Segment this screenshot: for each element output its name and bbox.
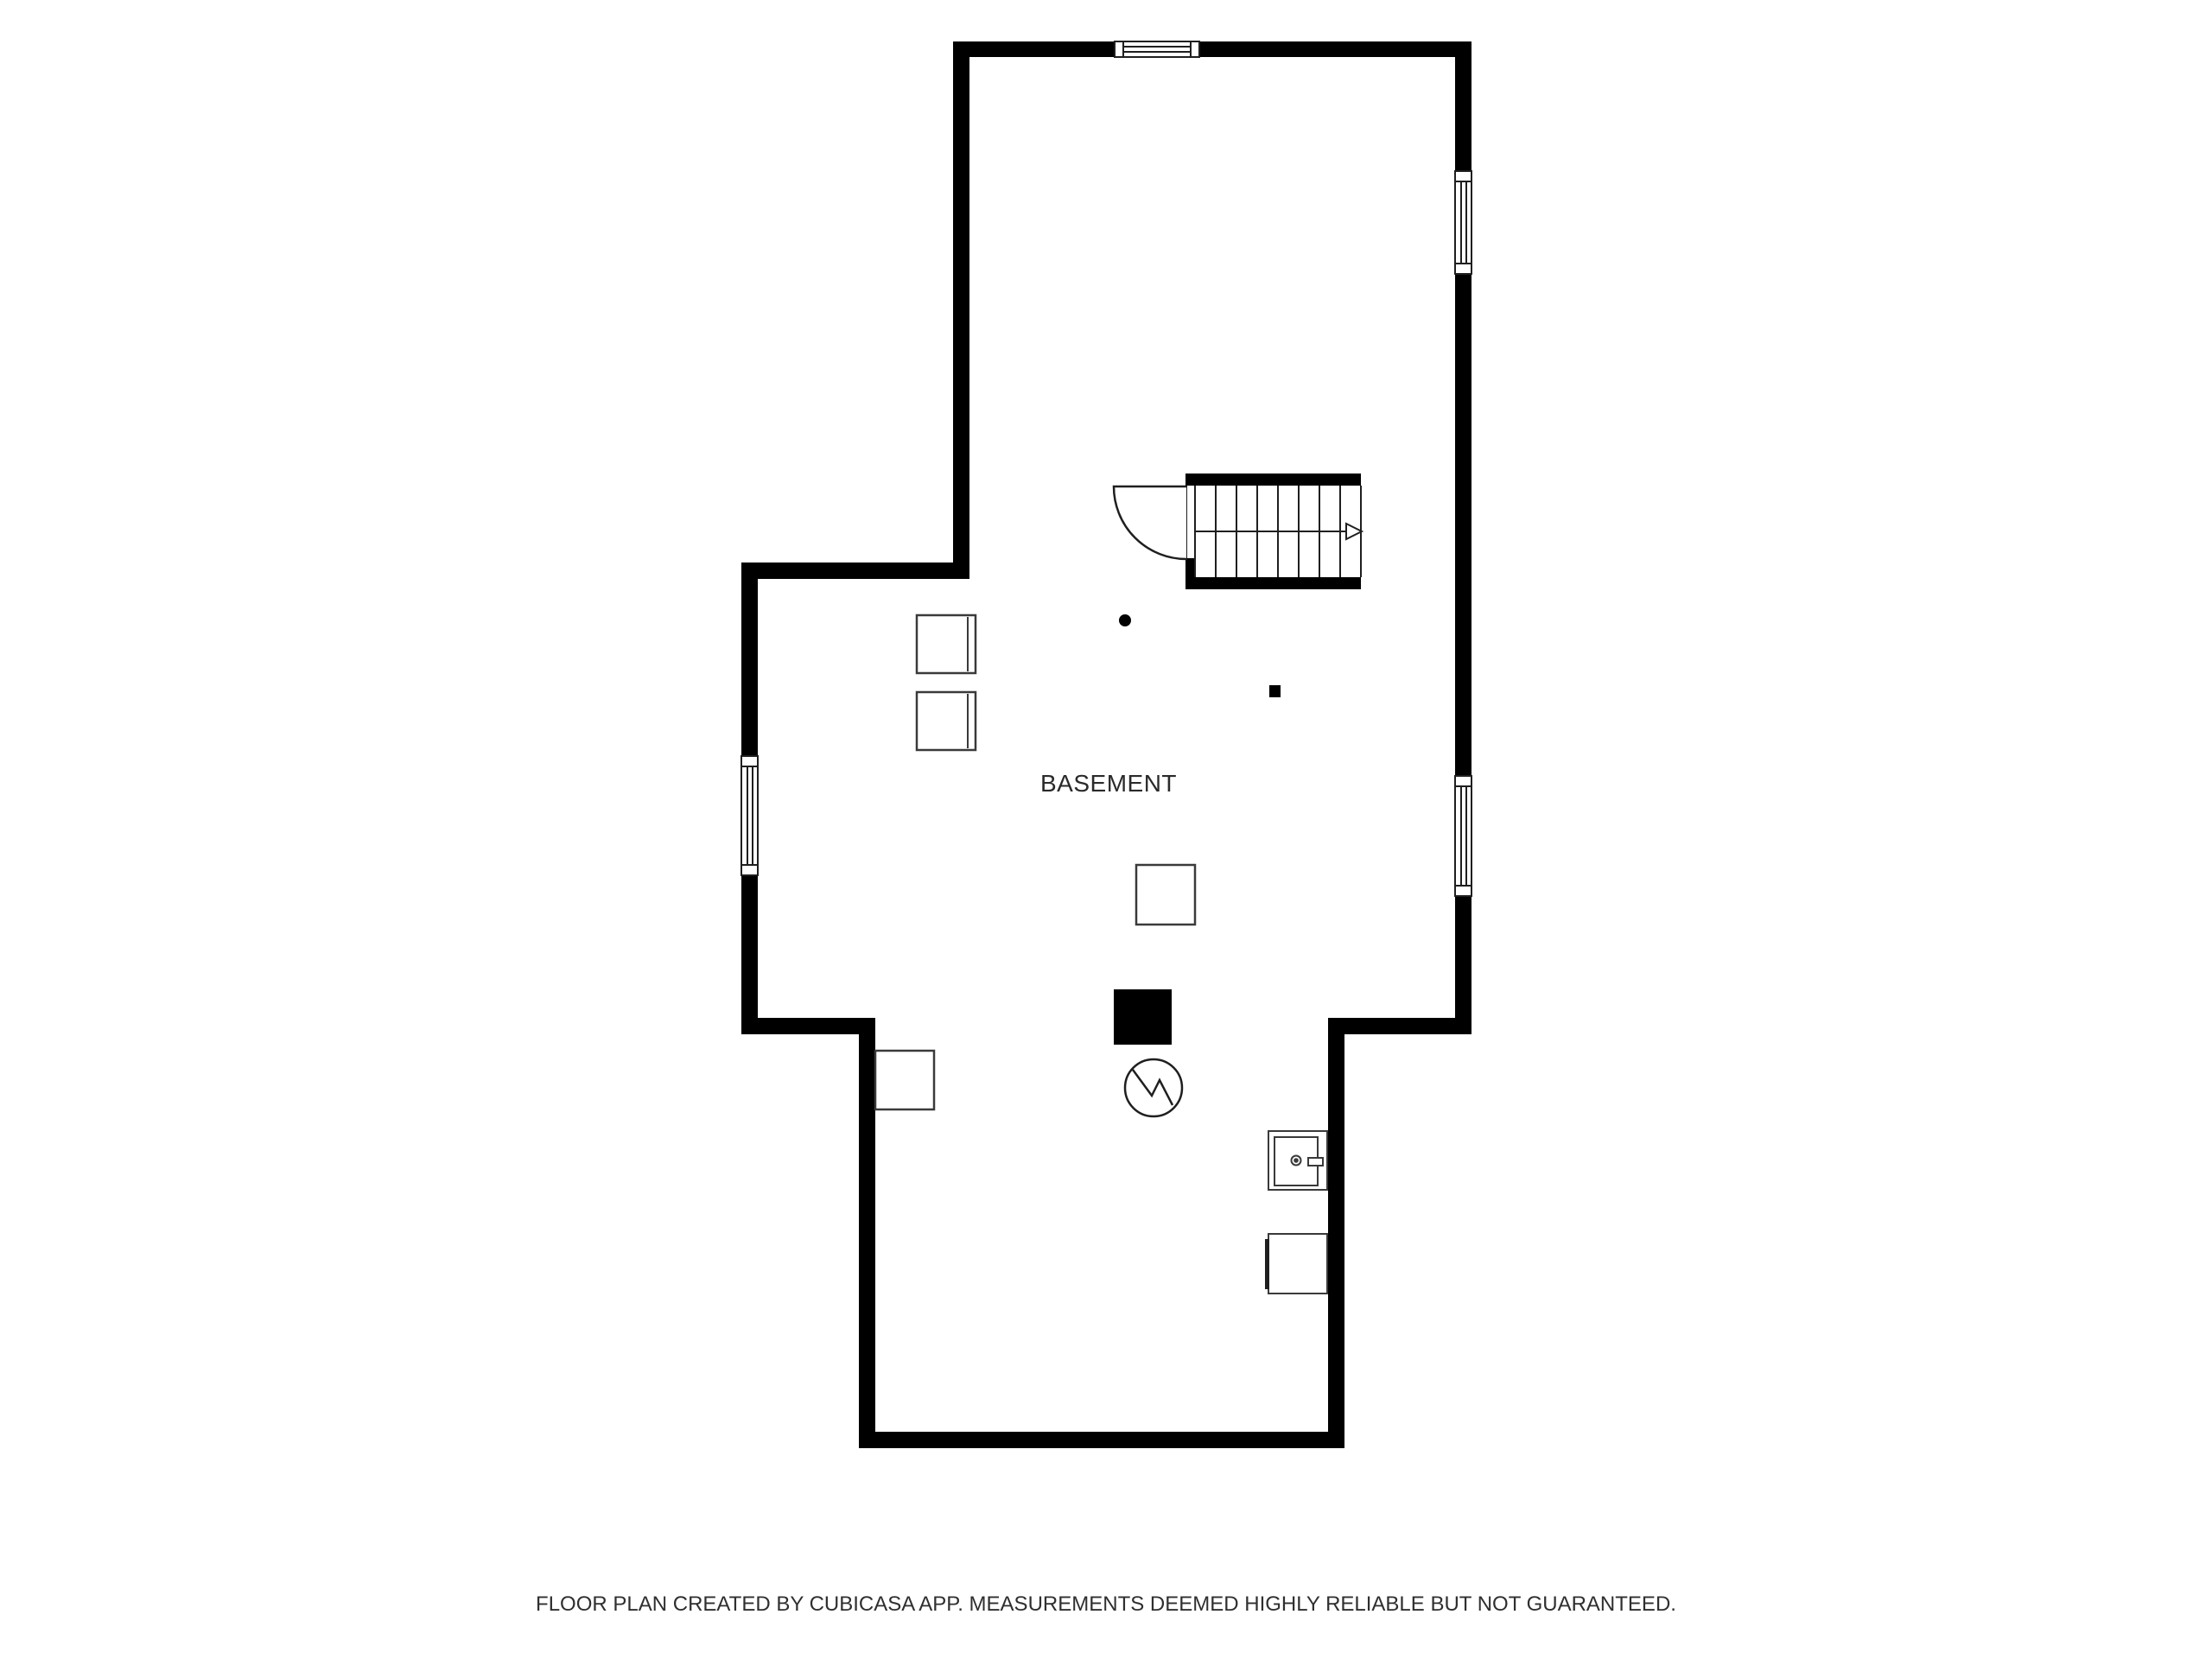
wall-step-bottom-left (741, 1018, 874, 1034)
appliance-box-3 (1265, 1234, 1327, 1294)
wall-bottom (859, 1432, 1344, 1448)
floor-plan-canvas: BASEMENT FLOOR PLAN CREATED BY CUBICASA … (0, 0, 2212, 1659)
door-swing-arc (1114, 486, 1186, 559)
corner-box (875, 1051, 934, 1109)
window-top (1115, 41, 1199, 57)
wall-dot-marker (1119, 614, 1131, 626)
wall-lower-left (859, 1018, 875, 1448)
stair-wall-bottom (1185, 577, 1361, 589)
window-left (741, 756, 758, 875)
windows (741, 41, 1471, 896)
appliance-box-2 (917, 692, 976, 750)
utility-sink (1268, 1131, 1327, 1190)
equipment-box-black (1114, 989, 1172, 1045)
appliance-door-edge (1265, 1239, 1269, 1289)
wall-step-bottom-right (1328, 1018, 1471, 1034)
storage-box (1136, 865, 1195, 925)
floor-plan-drawing (0, 0, 2212, 1659)
small-wall-box (1269, 685, 1281, 697)
sink-faucet (1308, 1158, 1323, 1166)
fixtures (875, 614, 1327, 1294)
appliance-box-1 (917, 615, 976, 673)
wall-upper-left (953, 41, 969, 579)
footer-disclaimer: FLOOR PLAN CREATED BY CUBICASA APP. MEAS… (0, 1592, 2212, 1617)
staircase (1185, 474, 1362, 589)
pump-circle-symbol (1125, 1059, 1182, 1116)
wall-mid-horizontal (741, 563, 969, 579)
walls (741, 41, 1471, 1448)
stair-wall-stub-left (1185, 558, 1195, 581)
wall-lower-right (1328, 1018, 1344, 1448)
window-right-lower (1455, 776, 1471, 896)
stair-wall-top (1185, 474, 1361, 486)
window-right-upper (1455, 171, 1471, 274)
room-label-basement: BASEMENT (979, 770, 1238, 798)
wall-top (953, 41, 1471, 57)
